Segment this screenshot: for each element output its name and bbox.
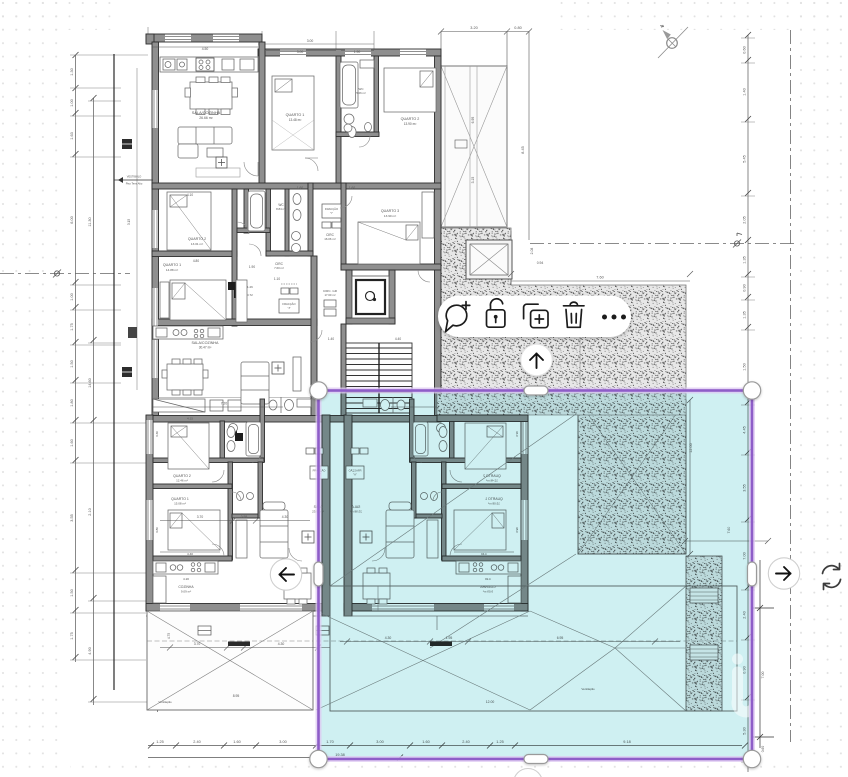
svg-text:4.50: 4.50 — [202, 47, 209, 51]
svg-text:14.88 m²: 14.88 m² — [166, 268, 178, 272]
svg-text:SALA/COZINHA: SALA/COZINHA — [191, 341, 219, 345]
svg-text:6.00: 6.00 — [70, 216, 74, 223]
svg-text:8.84 m²: 8.84 m² — [276, 207, 286, 211]
svg-text:6.95: 6.95 — [471, 117, 475, 124]
svg-text:SALA/COZINHA: SALA/COZINHA — [192, 110, 221, 115]
svg-text:1.63: 1.63 — [70, 132, 74, 139]
svg-text:3.20: 3.20 — [470, 26, 477, 30]
svg-text:13.01 m²: 13.01 m² — [191, 242, 203, 246]
svg-text:1.90: 1.90 — [249, 265, 255, 269]
svg-text:5.45: 5.45 — [743, 155, 747, 162]
svg-text:1.30: 1.30 — [70, 68, 74, 75]
svg-text:3.15: 3.15 — [127, 219, 131, 225]
svg-text:13.90 m²: 13.90 m² — [404, 122, 417, 126]
svg-text:30.47 m²: 30.47 m² — [199, 346, 212, 350]
svg-text:7.60: 7.60 — [596, 276, 603, 280]
svg-text:15.08 m²: 15.08 m² — [174, 502, 186, 506]
svg-text:3.80: 3.80 — [155, 527, 159, 533]
svg-text:16.06 m²: 16.06 m² — [324, 237, 335, 241]
svg-text:7.60 m²: 7.60 m² — [274, 266, 284, 270]
svg-text:26.66 m²: 26.66 m² — [199, 116, 213, 120]
svg-text:QUARTO 1: QUARTO 1 — [163, 263, 181, 267]
svg-text:3.70: 3.70 — [194, 642, 201, 646]
svg-text:13.48 m²: 13.48 m² — [289, 118, 302, 122]
svg-text:1.35: 1.35 — [743, 256, 747, 263]
svg-text:QUARTO 1: QUARTO 1 — [171, 497, 189, 501]
svg-text:0.80: 0.80 — [514, 26, 521, 30]
svg-text:Piso Term Alto: Piso Term Alto — [126, 182, 143, 186]
svg-text:1.10: 1.10 — [274, 277, 280, 281]
svg-text:1.00: 1.00 — [70, 99, 74, 106]
svg-text:1.60: 1.60 — [233, 740, 240, 744]
svg-text:1.50: 1.50 — [70, 589, 74, 596]
svg-text:13.90 m²: 13.90 m² — [384, 214, 396, 218]
svg-text:"I": "I" — [330, 211, 333, 215]
svg-text:2.40: 2.40 — [193, 740, 200, 744]
svg-text:VESTIBULO: VESTIBULO — [127, 175, 142, 179]
svg-text:1.60: 1.60 — [70, 439, 74, 446]
svg-text:QUARTO 1: QUARTO 1 — [286, 113, 305, 117]
svg-text:2.08: 2.08 — [530, 248, 534, 255]
svg-text:3.30: 3.30 — [155, 431, 159, 437]
svg-text:1.00: 1.00 — [70, 293, 74, 300]
svg-text:1.50: 1.50 — [70, 360, 74, 367]
svg-text:1.60: 1.60 — [349, 186, 355, 190]
svg-text:COZINHA: COZINHA — [178, 585, 194, 589]
svg-text:3.00: 3.00 — [279, 740, 286, 744]
svg-text:3.55: 3.55 — [70, 514, 74, 521]
svg-text:17.60 m²: 17.60 m² — [324, 293, 335, 297]
svg-text:1.40: 1.40 — [328, 337, 334, 341]
svg-text:4.10: 4.10 — [187, 193, 193, 197]
svg-text:4.15: 4.15 — [187, 417, 193, 421]
svg-text:QUARTO 3: QUARTO 3 — [381, 209, 399, 213]
svg-text:4.75: 4.75 — [167, 633, 171, 639]
svg-text:1.40: 1.40 — [743, 88, 747, 95]
svg-text:3.70: 3.70 — [197, 515, 204, 519]
svg-text:1.25: 1.25 — [156, 740, 163, 744]
svg-text:1.26: 1.26 — [247, 285, 253, 289]
svg-text:8.95: 8.95 — [233, 694, 240, 698]
svg-text:4.80: 4.80 — [193, 259, 199, 263]
svg-text:0.60: 0.60 — [761, 746, 765, 753]
svg-text:1.80: 1.80 — [70, 399, 74, 406]
svg-text:11.30: 11.30 — [88, 217, 92, 226]
svg-text:"J": "J" — [287, 306, 290, 310]
svg-text:8.45: 8.45 — [521, 146, 525, 153]
svg-text:4.40: 4.40 — [395, 337, 401, 341]
svg-text:7.00: 7.00 — [761, 672, 765, 679]
svg-text:0.95: 0.95 — [241, 515, 248, 519]
svg-text:1.75: 1.75 — [70, 323, 74, 330]
svg-text:1.35: 1.35 — [743, 311, 747, 318]
svg-text:Ventilação: Ventilação — [158, 700, 172, 704]
svg-text:0.72: 0.72 — [247, 293, 253, 297]
svg-text:0.94: 0.94 — [537, 261, 544, 265]
svg-text:3.15: 3.15 — [471, 177, 475, 184]
svg-text:2.05: 2.05 — [743, 216, 747, 223]
svg-text:0.90: 0.90 — [743, 284, 747, 291]
svg-text:QUARTO 2: QUARTO 2 — [188, 237, 206, 241]
svg-text:QUARTO 2: QUARTO 2 — [173, 474, 191, 478]
svg-text:1.60: 1.60 — [297, 186, 303, 190]
svg-text:4.30: 4.30 — [278, 642, 285, 646]
svg-text:9.09 m²: 9.09 m² — [181, 590, 191, 594]
svg-text:1.50: 1.50 — [743, 363, 747, 370]
svg-text:12.46 m²: 12.46 m² — [176, 479, 188, 483]
svg-text:1.75: 1.75 — [70, 632, 74, 639]
svg-text:2.10: 2.10 — [88, 508, 92, 515]
svg-text:4.30: 4.30 — [282, 515, 289, 519]
svg-text:4.20: 4.20 — [183, 577, 189, 581]
svg-text:4.40: 4.40 — [187, 552, 193, 556]
svg-text:3.00: 3.00 — [307, 39, 314, 43]
svg-text:0.60: 0.60 — [743, 46, 747, 53]
svg-text:QUARTO 2: QUARTO 2 — [401, 117, 420, 121]
svg-text:4.90: 4.90 — [88, 647, 92, 654]
svg-text:7.20: 7.20 — [221, 402, 228, 406]
svg-text:5.06 m²: 5.06 m² — [356, 91, 366, 95]
